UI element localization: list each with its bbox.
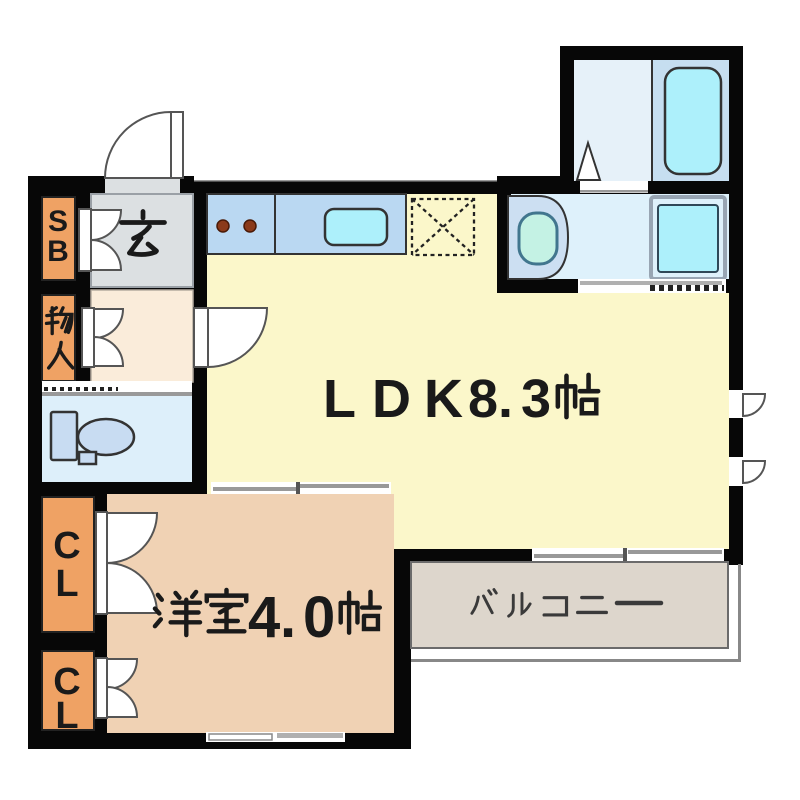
svg-text:8: 8 [468, 369, 498, 429]
svg-text:L: L [55, 695, 78, 737]
svg-text:.: . [280, 585, 296, 650]
svg-text:S: S [48, 205, 68, 238]
svg-text:3: 3 [521, 369, 551, 429]
svg-text:C: C [53, 525, 80, 567]
svg-text:D: D [372, 369, 411, 429]
svg-text:L: L [323, 369, 356, 429]
svg-text:.: . [498, 369, 513, 429]
svg-text:4: 4 [248, 585, 280, 650]
svg-text:L: L [55, 563, 78, 605]
svg-text:K: K [424, 369, 463, 429]
svg-text:0: 0 [303, 585, 335, 650]
svg-text:B: B [47, 235, 69, 268]
